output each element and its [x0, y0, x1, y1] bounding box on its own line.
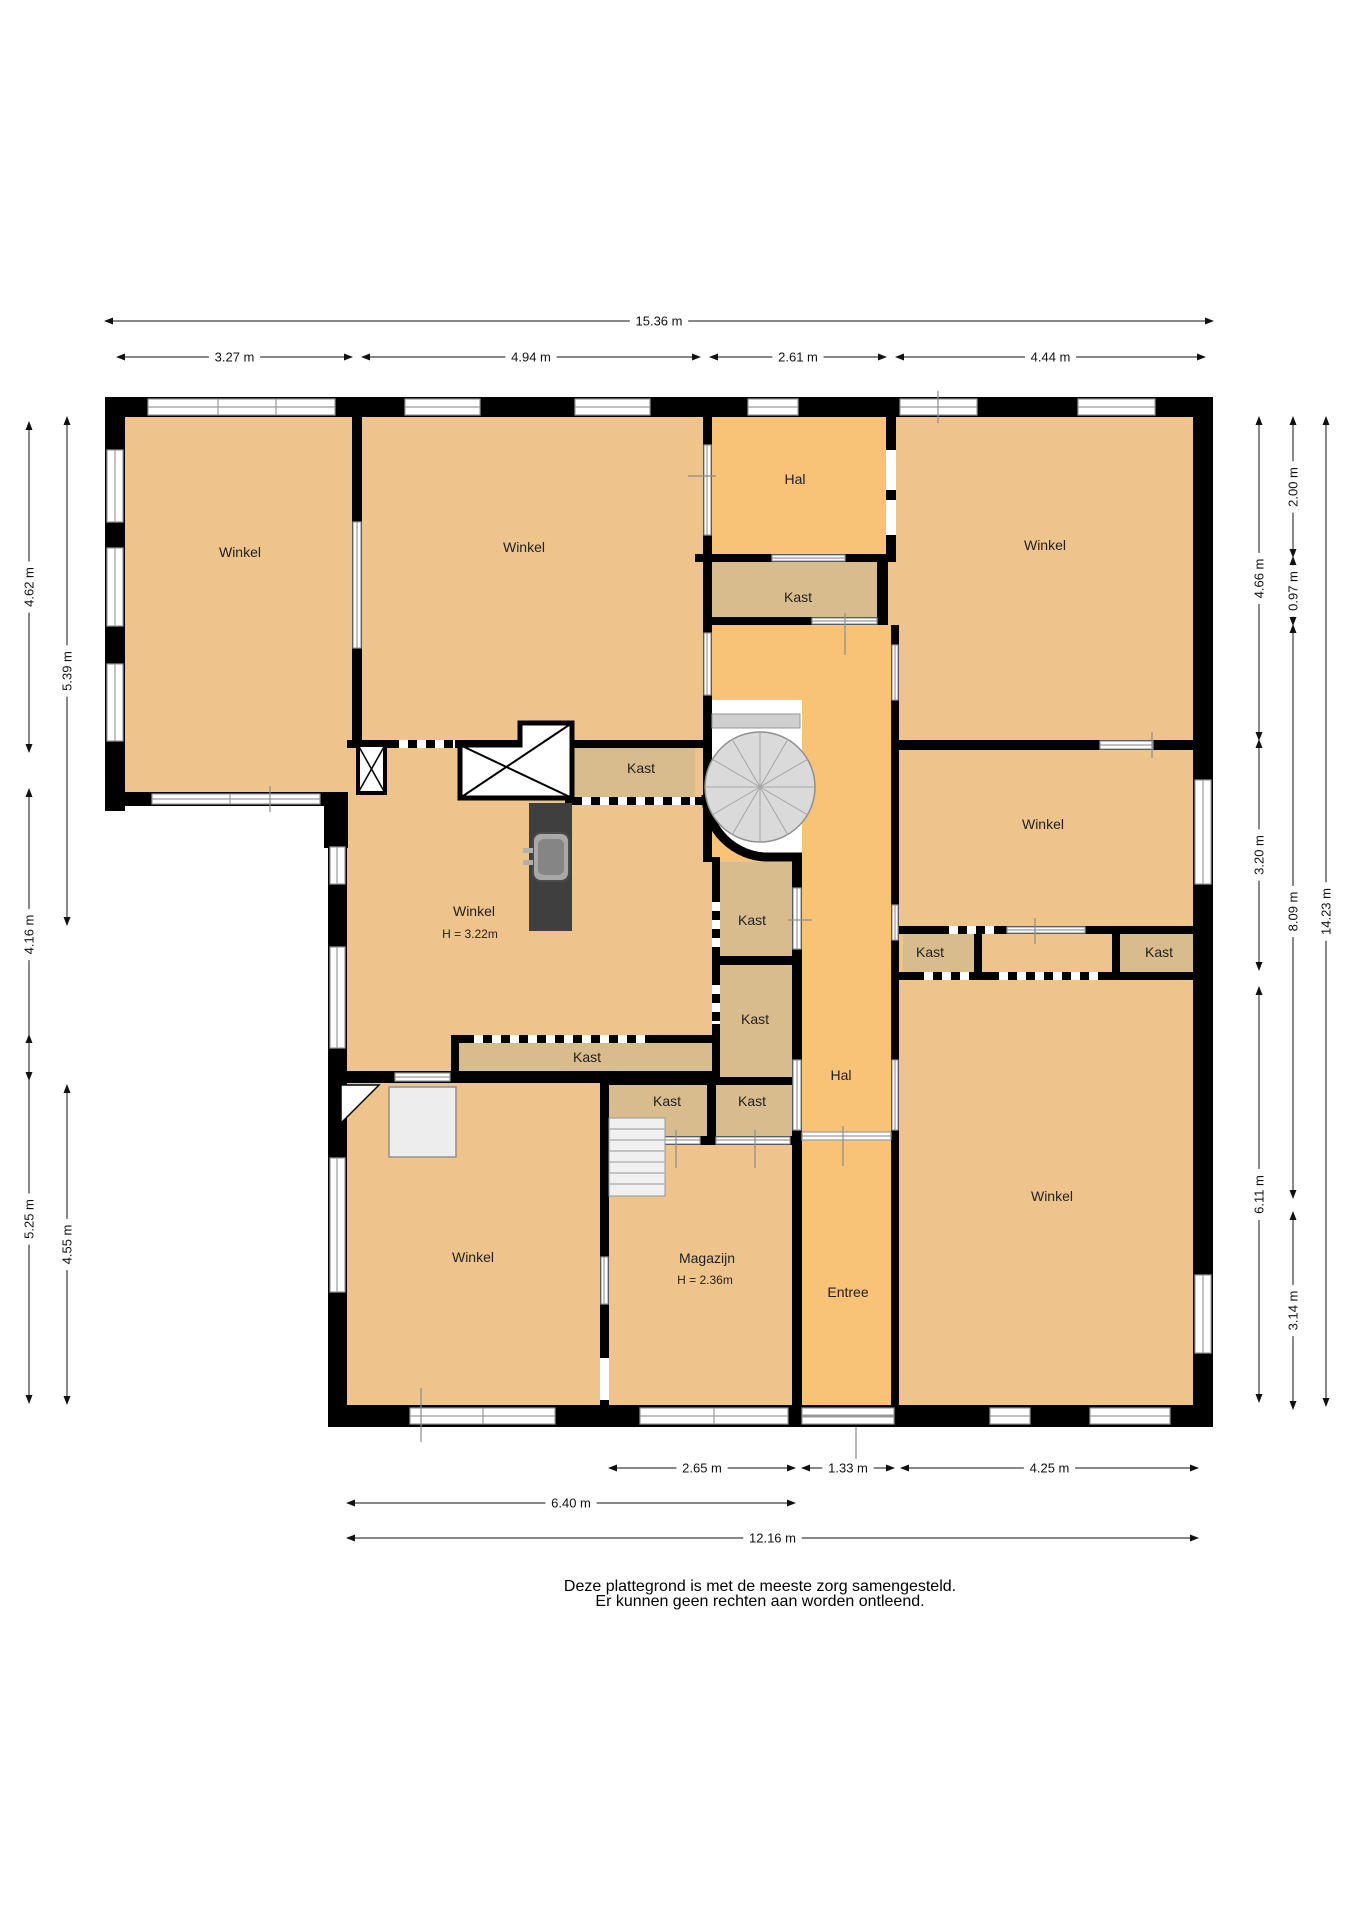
- room-label-entree: Entree: [827, 1284, 868, 1300]
- room-label-winkel-bottom-right: Winkel: [1031, 1188, 1073, 1204]
- dimension-label: 8.09 m: [1286, 892, 1301, 932]
- room-label-kast-center-1: Kast: [738, 912, 766, 928]
- dimension-label: 4.66 m: [1252, 559, 1267, 599]
- room-sublabel-winkel-mid: H = 3.22m: [442, 927, 498, 941]
- dimension-label: 6.40 m: [551, 1496, 591, 1511]
- room-label-hal-top: Hal: [784, 471, 805, 487]
- room-label-winkel-top-right: Winkel: [1024, 537, 1066, 553]
- furniture-block: [389, 1087, 456, 1157]
- room-label-kast-pair-left: Kast: [653, 1093, 681, 1109]
- room-label-kast-right-b: Kast: [1145, 944, 1173, 960]
- room-label-kast-pair-right: Kast: [738, 1093, 766, 1109]
- room-label-hal-mid: Hal: [830, 1067, 851, 1083]
- room-label-winkel-bottom-left: Winkel: [452, 1249, 494, 1265]
- dimension-label: 6.11 m: [1252, 1175, 1267, 1214]
- dimension-label: 4.25 m: [1030, 1461, 1070, 1476]
- room-label-winkel-top-mid: Winkel: [503, 539, 545, 555]
- dimension-label: 2.65 m: [682, 1461, 722, 1476]
- dimension-label: 2.00 m: [1286, 467, 1301, 507]
- footer-line-2: Er kunnen geen rechten aan worden ontlee…: [81, 1593, 1358, 1611]
- kitchen-counter: [523, 803, 572, 931]
- dimension-label: 3.14 m: [1286, 1291, 1301, 1331]
- room-label-kast-center-2: Kast: [741, 1011, 769, 1027]
- dimension-label: 4.62 m: [22, 567, 37, 607]
- room-label-kast-mid-left: Kast: [627, 760, 655, 776]
- room-label-winkel-mid: Winkel: [453, 903, 495, 919]
- dimension-label: 15.36 m: [636, 314, 683, 329]
- dimension-label: 1.33 m: [828, 1461, 868, 1476]
- room-label-winkel-mid-right: Winkel: [1022, 816, 1064, 832]
- elevator-shaft-icon: [358, 745, 385, 793]
- dimension-label: 0.97 m: [1286, 571, 1301, 611]
- floor-plan: WinkelWinkelHalWinkelKastKastWinkelWinke…: [0, 0, 1358, 1920]
- dimension-label: 4.55 m: [60, 1225, 75, 1265]
- room-label-kast-right-a: Kast: [916, 944, 944, 960]
- dimension-label: 14.23 m: [1319, 888, 1334, 935]
- room-label-magazijn: Magazijn: [679, 1250, 735, 1266]
- room-label-kast-strip: Kast: [573, 1049, 601, 1065]
- dimension-label: 4.44 m: [1031, 350, 1071, 365]
- room-label-winkel-top-left: Winkel: [219, 544, 261, 560]
- floorplan-canvas: WinkelWinkelHalWinkelKastKastWinkelWinke…: [0, 0, 1358, 1920]
- dimension-label: 3.20 m: [1252, 835, 1267, 875]
- dimension-label: 4.16 m: [22, 915, 37, 955]
- dimension-label: 3.27 m: [215, 350, 255, 365]
- dimension-label: 5.25 m: [22, 1199, 37, 1239]
- dimension-label: 12.16 m: [749, 1531, 796, 1546]
- dimension-label: 2.61 m: [778, 350, 818, 365]
- dimension-label: 4.94 m: [511, 350, 551, 365]
- dimension-label: 5.39 m: [60, 651, 75, 691]
- staircase-icon: [609, 1118, 665, 1196]
- room-sublabel-magazijn: H = 2.36m: [677, 1273, 733, 1287]
- room-label-kast-under-hal: Kast: [784, 589, 812, 605]
